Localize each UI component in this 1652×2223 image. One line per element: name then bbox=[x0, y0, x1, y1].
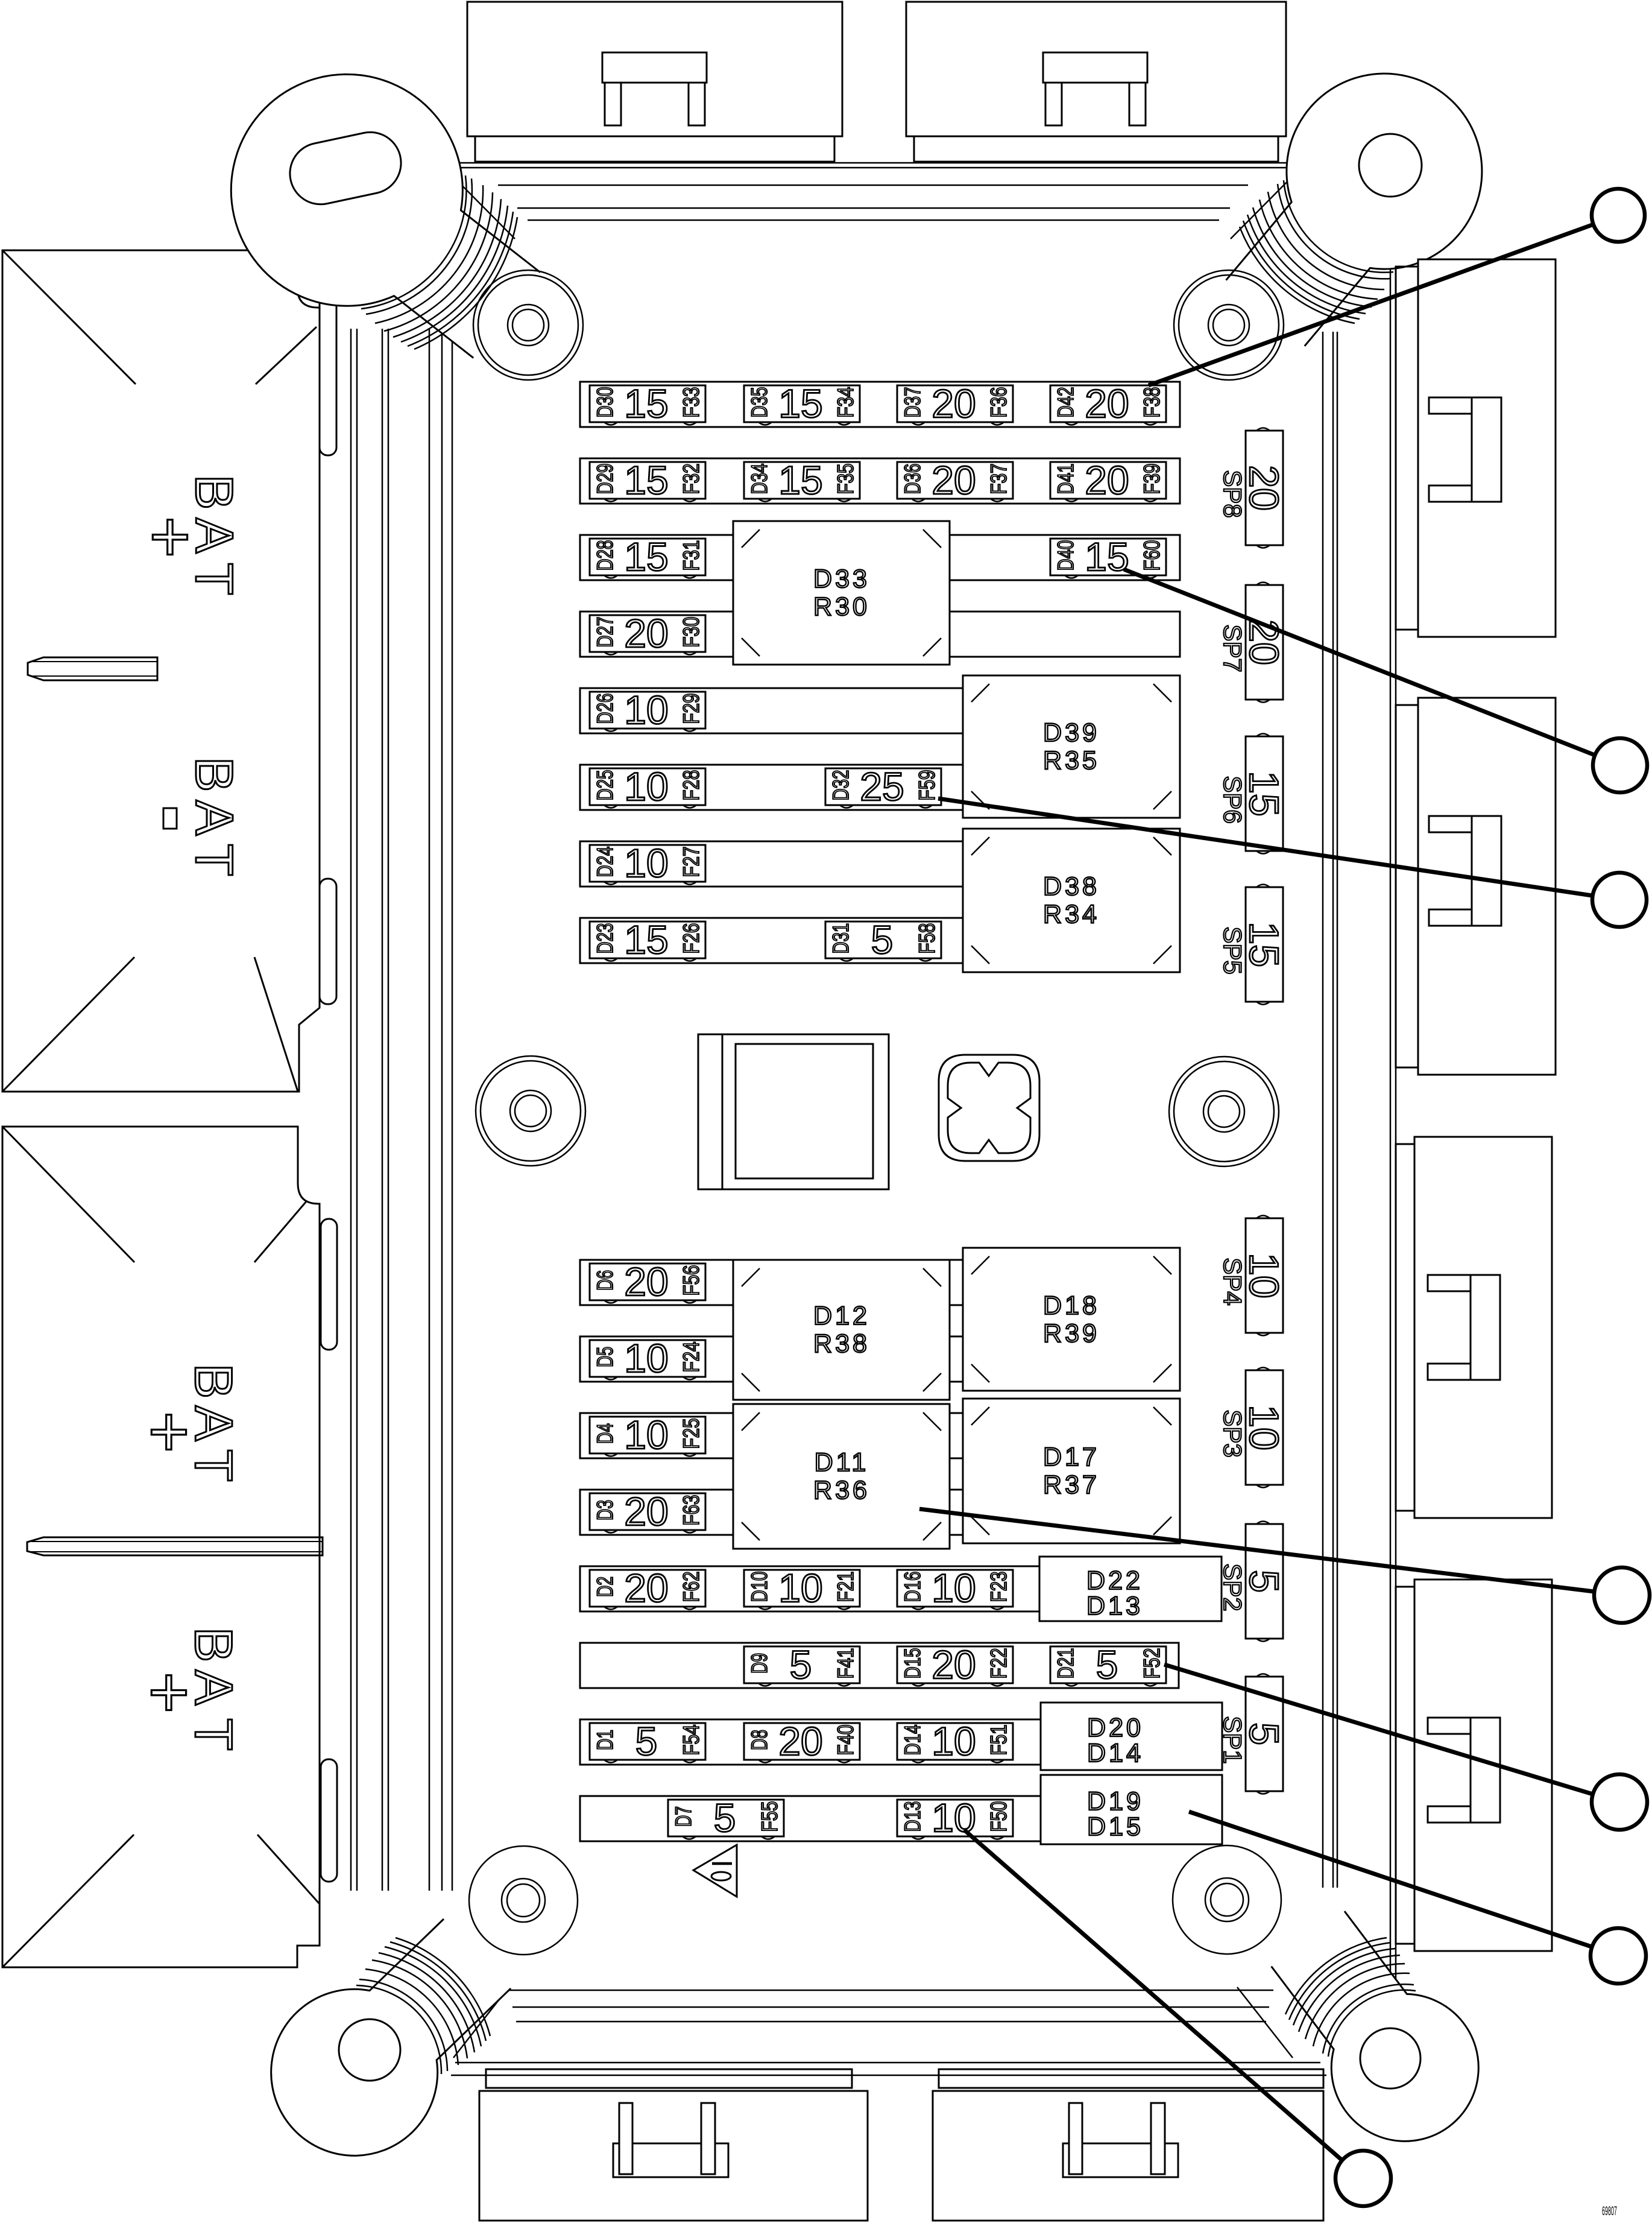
svg-text:D35: D35 bbox=[747, 387, 772, 418]
svg-text:F63: F63 bbox=[679, 1495, 704, 1526]
svg-text:20: 20 bbox=[932, 458, 976, 502]
svg-text:F62: F62 bbox=[679, 1572, 704, 1602]
svg-text:D14: D14 bbox=[900, 1725, 925, 1756]
svg-text:B: B bbox=[184, 1364, 244, 1399]
svg-text:5: 5 bbox=[790, 1642, 812, 1687]
svg-text:D22: D22 bbox=[1086, 1566, 1143, 1595]
svg-text:D27: D27 bbox=[593, 617, 617, 648]
svg-text:A: A bbox=[184, 800, 244, 836]
svg-text:15: 15 bbox=[778, 381, 822, 426]
svg-text:10: 10 bbox=[624, 1412, 668, 1457]
svg-text:F32: F32 bbox=[679, 464, 704, 495]
svg-text:20: 20 bbox=[932, 1642, 976, 1687]
svg-text:F40: F40 bbox=[833, 1725, 858, 1756]
svg-text:F55: F55 bbox=[757, 1801, 782, 1832]
svg-text:F60: F60 bbox=[1140, 540, 1164, 571]
svg-text:+: + bbox=[148, 1392, 190, 1472]
svg-text:D7: D7 bbox=[671, 1806, 696, 1827]
svg-text:20: 20 bbox=[624, 1489, 668, 1534]
svg-text:B: B bbox=[184, 757, 244, 792]
svg-text:D10: D10 bbox=[747, 1572, 772, 1602]
svg-text:R39: R39 bbox=[1043, 1319, 1100, 1348]
svg-text:D21: D21 bbox=[1053, 1648, 1078, 1679]
svg-text:D40: D40 bbox=[1053, 540, 1078, 571]
svg-text:D25: D25 bbox=[593, 770, 617, 801]
svg-text:D14: D14 bbox=[1087, 1739, 1144, 1768]
svg-text:15: 15 bbox=[1085, 534, 1129, 579]
svg-text:10: 10 bbox=[624, 688, 668, 732]
svg-text:D31: D31 bbox=[828, 923, 853, 954]
svg-text:D2: D2 bbox=[593, 1576, 617, 1597]
svg-text:15: 15 bbox=[624, 458, 668, 502]
svg-text:20: 20 bbox=[932, 381, 976, 426]
svg-text:F24: F24 bbox=[679, 1342, 704, 1373]
svg-text:F30: F30 bbox=[679, 617, 704, 648]
svg-text:10: 10 bbox=[1241, 1405, 1287, 1450]
svg-text:20: 20 bbox=[1085, 458, 1129, 502]
svg-text:T: T bbox=[184, 844, 244, 876]
svg-text:10: 10 bbox=[624, 764, 668, 809]
svg-text:5: 5 bbox=[635, 1719, 658, 1763]
svg-text:F22: F22 bbox=[986, 1648, 1011, 1679]
svg-text:+: + bbox=[150, 497, 191, 577]
svg-text:D32: D32 bbox=[828, 770, 853, 801]
svg-text:D19: D19 bbox=[1087, 1787, 1144, 1816]
svg-text:F39: F39 bbox=[1140, 464, 1164, 495]
svg-text:D28: D28 bbox=[593, 540, 617, 571]
svg-text:A: A bbox=[184, 518, 244, 554]
svg-text:T: T bbox=[184, 1718, 244, 1751]
svg-text:F58: F58 bbox=[915, 923, 939, 954]
svg-text:B: B bbox=[184, 475, 244, 510]
svg-text:5: 5 bbox=[1096, 1642, 1118, 1687]
svg-text:D1: D1 bbox=[593, 1730, 617, 1750]
svg-text:F31: F31 bbox=[679, 540, 704, 571]
svg-text:D16: D16 bbox=[900, 1572, 925, 1602]
svg-text:F37: F37 bbox=[986, 464, 1011, 495]
svg-text:10: 10 bbox=[1241, 1253, 1287, 1298]
svg-text:D34: D34 bbox=[747, 464, 772, 495]
svg-text:R35: R35 bbox=[1043, 746, 1100, 775]
svg-text:15: 15 bbox=[1241, 771, 1287, 817]
svg-text:20: 20 bbox=[624, 1259, 668, 1304]
svg-text:D15: D15 bbox=[1087, 1812, 1144, 1841]
svg-text:D15: D15 bbox=[900, 1648, 925, 1679]
svg-text:D5: D5 bbox=[593, 1347, 617, 1367]
svg-text:D9: D9 bbox=[747, 1653, 772, 1674]
svg-text:D3: D3 bbox=[593, 1500, 617, 1520]
svg-text:F34: F34 bbox=[833, 387, 858, 418]
svg-text:F29: F29 bbox=[679, 694, 704, 724]
svg-text:15: 15 bbox=[624, 534, 668, 579]
svg-text:10: 10 bbox=[778, 1566, 822, 1610]
svg-text:F27: F27 bbox=[679, 847, 704, 877]
svg-text:15: 15 bbox=[778, 458, 822, 502]
svg-text:10: 10 bbox=[932, 1719, 976, 1763]
svg-text:D17: D17 bbox=[1043, 1443, 1100, 1472]
svg-text:D41: D41 bbox=[1053, 464, 1078, 495]
svg-text:D26: D26 bbox=[593, 694, 617, 724]
svg-text:A: A bbox=[184, 1670, 244, 1706]
svg-text:20: 20 bbox=[624, 611, 668, 656]
svg-text:20: 20 bbox=[624, 1566, 668, 1610]
svg-text:15: 15 bbox=[624, 917, 668, 962]
svg-text:R38: R38 bbox=[813, 1329, 870, 1358]
svg-text:D18: D18 bbox=[1043, 1291, 1100, 1320]
svg-text:D11: D11 bbox=[815, 1448, 869, 1477]
svg-text:D24: D24 bbox=[593, 847, 617, 877]
svg-text:D37: D37 bbox=[900, 387, 925, 418]
svg-text:F59: F59 bbox=[915, 770, 939, 801]
svg-text:20: 20 bbox=[778, 1719, 822, 1763]
svg-text:F50: F50 bbox=[986, 1801, 1011, 1832]
svg-text:F36: F36 bbox=[986, 387, 1011, 418]
svg-text:R36: R36 bbox=[813, 1476, 870, 1505]
svg-text:F28: F28 bbox=[679, 770, 704, 801]
svg-text:D13: D13 bbox=[1086, 1592, 1143, 1621]
svg-text:D39: D39 bbox=[1043, 718, 1100, 747]
svg-text:R37: R37 bbox=[1043, 1470, 1100, 1499]
svg-text:F56: F56 bbox=[679, 1265, 704, 1296]
svg-text:20: 20 bbox=[1241, 465, 1287, 511]
svg-text:D20: D20 bbox=[1087, 1713, 1144, 1742]
svg-text:F33: F33 bbox=[679, 387, 704, 418]
svg-text:F51: F51 bbox=[986, 1725, 1011, 1756]
svg-text:5: 5 bbox=[1241, 1570, 1287, 1593]
svg-text:F52: F52 bbox=[1140, 1648, 1164, 1679]
svg-text:69807: 69807 bbox=[1602, 2204, 1617, 2218]
svg-text:D4: D4 bbox=[593, 1423, 617, 1444]
svg-text:F21: F21 bbox=[833, 1572, 858, 1602]
svg-text:15: 15 bbox=[624, 381, 668, 426]
svg-text:15: 15 bbox=[1241, 922, 1287, 967]
svg-text:10: 10 bbox=[624, 1336, 668, 1380]
svg-text:5: 5 bbox=[714, 1795, 736, 1840]
svg-text:20: 20 bbox=[1085, 381, 1129, 426]
svg-text:F23: F23 bbox=[986, 1572, 1011, 1602]
svg-text:D42: D42 bbox=[1053, 387, 1078, 418]
svg-text:D29: D29 bbox=[593, 464, 617, 495]
svg-text:D13: D13 bbox=[900, 1801, 925, 1832]
svg-text:T: T bbox=[184, 1449, 244, 1482]
svg-text:10: 10 bbox=[932, 1566, 976, 1610]
svg-text:T: T bbox=[184, 563, 244, 595]
svg-text:F38: F38 bbox=[1140, 387, 1164, 418]
svg-text:10: 10 bbox=[624, 841, 668, 885]
svg-text:5: 5 bbox=[1241, 1722, 1287, 1745]
svg-text:D33: D33 bbox=[813, 564, 870, 593]
svg-text:R30: R30 bbox=[813, 592, 870, 621]
svg-text:D6: D6 bbox=[593, 1270, 617, 1291]
svg-text:D36: D36 bbox=[900, 464, 925, 495]
svg-text:5: 5 bbox=[871, 917, 894, 962]
svg-text:F41: F41 bbox=[833, 1648, 858, 1679]
svg-text:D8: D8 bbox=[747, 1730, 772, 1750]
svg-text:F54: F54 bbox=[679, 1725, 704, 1756]
svg-text:+: + bbox=[148, 1652, 190, 1732]
svg-text:D38: D38 bbox=[1043, 872, 1100, 901]
svg-text:D12: D12 bbox=[813, 1301, 870, 1330]
svg-text:A: A bbox=[184, 1406, 244, 1441]
svg-text:R34: R34 bbox=[1043, 900, 1100, 929]
svg-text:F26: F26 bbox=[679, 923, 704, 954]
svg-text:D30: D30 bbox=[593, 387, 617, 418]
svg-text:F35: F35 bbox=[833, 464, 858, 495]
svg-text:25: 25 bbox=[860, 764, 904, 809]
svg-text:F25: F25 bbox=[679, 1418, 704, 1449]
svg-text:B: B bbox=[184, 1627, 244, 1663]
svg-text:D23: D23 bbox=[593, 923, 617, 954]
